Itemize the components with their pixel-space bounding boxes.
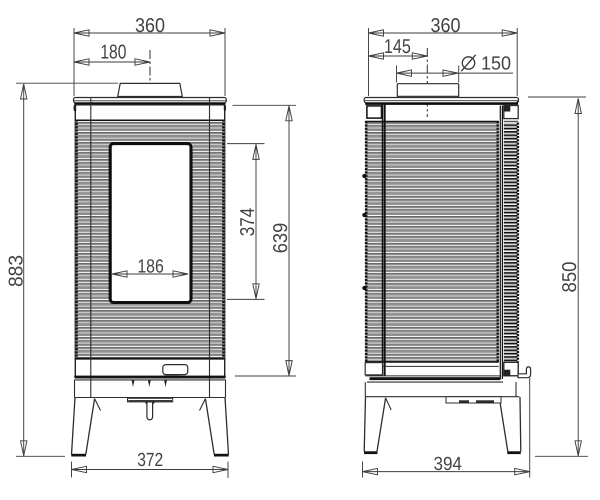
- svg-text:639: 639: [270, 223, 292, 254]
- svg-text:145: 145: [384, 36, 411, 58]
- svg-text:186: 186: [137, 257, 164, 278]
- svg-text:883: 883: [5, 255, 27, 287]
- svg-text:150: 150: [481, 54, 511, 75]
- svg-text:372: 372: [137, 450, 163, 471]
- svg-text:360: 360: [135, 15, 165, 37]
- svg-text:850: 850: [559, 262, 581, 293]
- svg-text:360: 360: [431, 15, 461, 37]
- svg-text:180: 180: [100, 42, 126, 64]
- svg-text:374: 374: [237, 208, 259, 237]
- svg-text:394: 394: [433, 454, 462, 475]
